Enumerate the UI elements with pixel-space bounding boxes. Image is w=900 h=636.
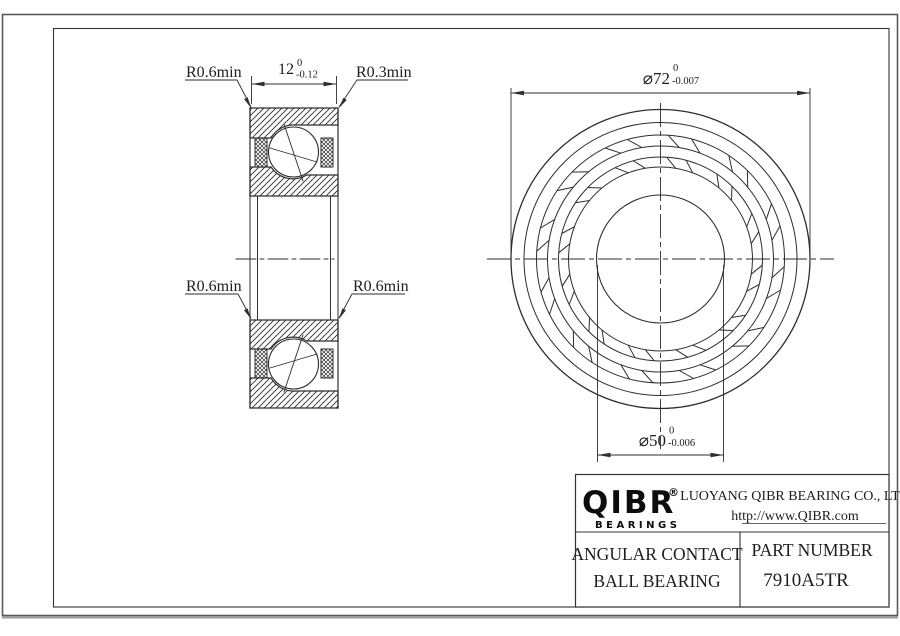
title-block: QIBR ® BEARINGS LUOYANG QIBR BEARING CO.…: [571, 475, 900, 608]
cage-pocket-tick: [668, 135, 679, 147]
bore-dim-tol-lower: -0.006: [668, 438, 695, 449]
cage-pocket-tick: [569, 291, 574, 304]
product-type-line2: BALL BEARING: [593, 571, 721, 591]
cage-pocket-tick: [633, 161, 645, 169]
bearing-drawing-canvas: 12 0 -0.12 ⌀72 0 -0.007 ⌀50 0 -0.006: [0, 0, 900, 636]
bore-dim-value: ⌀50: [639, 431, 666, 450]
cage-pocket-tick: [562, 274, 570, 286]
section-bottom-half: [250, 320, 338, 408]
width-dimension: 12 0 -0.12: [252, 58, 337, 104]
cage-pocket-tick: [732, 186, 733, 200]
cage-pocket-tick: [589, 318, 590, 332]
radius-label-mid-right: R0.6min: [353, 278, 409, 295]
cage-pocket-tick: [559, 244, 570, 253]
cage-pocket-tick: [679, 371, 693, 379]
cage-pocket-tick: [550, 299, 555, 315]
cage-pocket-tick: [642, 371, 653, 383]
cage-pocket-tick: [541, 278, 549, 292]
bore-face-lines: [250, 196, 338, 320]
width-dim-tol-lower: -0.12: [296, 70, 318, 81]
company-logo: QIBR ® BEARINGS: [582, 485, 680, 531]
product-type-line1: ANGULAR CONTACT: [571, 544, 742, 564]
engineering-drawing-page: 12 0 -0.12 ⌀72 0 -0.007 ⌀50 0 -0.006: [0, 0, 900, 636]
cage-pocket-tick: [588, 188, 602, 189]
company-name: LUOYANG QIBR BEARING CO., LTD: [680, 489, 900, 504]
cage-pocket-tick: [676, 350, 688, 358]
dimension-arrow: [598, 453, 611, 457]
od-dim-tol-lower: -0.007: [672, 76, 699, 87]
od-dim-tol-upper: 0: [673, 63, 678, 74]
cage-pocket-tick: [719, 330, 733, 331]
cage-pocket-tick: [766, 204, 771, 220]
dimension-arrow: [797, 91, 810, 95]
logo-text: QIBR: [582, 485, 675, 521]
dimension-arrow: [711, 453, 724, 457]
cage-pocket-tick: [667, 157, 676, 168]
dimension-arrow: [252, 82, 265, 86]
section-top-half: [250, 108, 338, 196]
logo-subtext: BEARINGS: [595, 520, 680, 531]
company-website: http://www.QIBR.com: [731, 509, 859, 524]
width-dim-value: 12: [278, 61, 294, 78]
cage-pocket-tick: [772, 226, 780, 240]
cage-section: [255, 349, 267, 378]
cage-pocket-tick: [645, 350, 654, 361]
cage-pocket-tick: [751, 232, 759, 244]
cage-pocket-tick: [537, 240, 549, 251]
radius-label-mid-left: R0.6min: [186, 278, 242, 295]
part-number-value: 7910A5TR: [763, 570, 849, 591]
dimension-arrow: [511, 91, 524, 95]
cage-pocket-tick: [747, 214, 752, 227]
cage-pocket-tick: [700, 365, 716, 370]
section-view: [236, 108, 338, 408]
radius-label-top-left: R0.6min: [186, 64, 242, 81]
radius-label-top-right: R0.3min: [356, 64, 412, 81]
cage-pocket-tick: [605, 148, 621, 153]
cage-pocket-tick: [627, 140, 641, 148]
dimension-arrow: [324, 82, 337, 86]
registered-trademark-icon: ®: [668, 486, 679, 499]
width-dim-tol-upper: 0: [297, 58, 302, 69]
cage-pocket-tick: [772, 267, 784, 278]
cage-section: [321, 138, 333, 167]
bore-dim-tol-upper: 0: [669, 426, 674, 437]
cage-pocket-tick: [693, 345, 706, 350]
cage-section: [255, 138, 267, 167]
front-view: [487, 103, 834, 449]
part-number-label: PART NUMBER: [751, 540, 872, 560]
cage-section: [321, 349, 333, 378]
cage-pocket-tick: [615, 168, 628, 173]
od-dim-value: ⌀72: [643, 69, 670, 88]
cage-pocket-tick: [751, 265, 762, 274]
